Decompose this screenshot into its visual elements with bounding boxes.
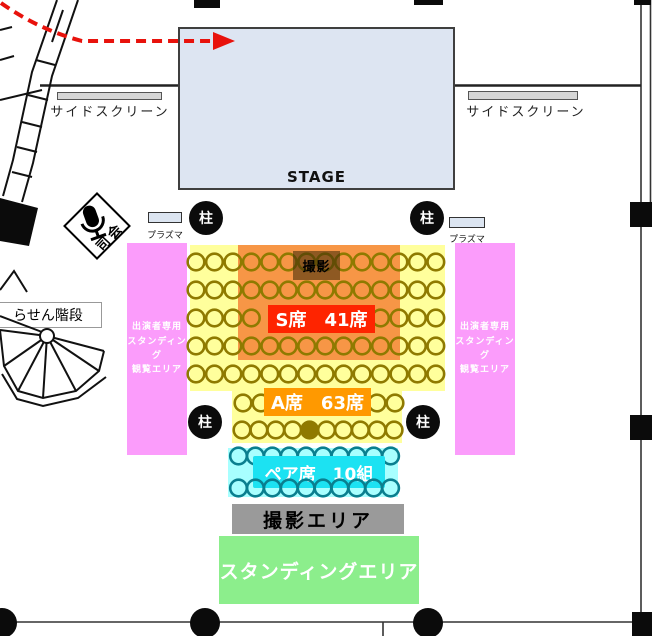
stair-base-block [0,198,38,246]
pillar-mid-left: 柱 [188,405,222,439]
side-area-line2: スタンディング [455,335,515,364]
side-area-line1: 出演者専用 [455,320,515,334]
left-side-screen-bar [57,92,162,100]
performer-standing-area-right: 出演者専用 スタンディング 観覧エリア [455,243,515,455]
left-plasma-bar [148,212,182,223]
s-seats-label: S席 41席 [268,305,375,333]
pillar-top-right: 柱 [410,201,444,235]
spiral-staircase-label: らせん階段 [0,302,102,328]
stage-label: STAGE [180,168,453,186]
mc-label: 司会 [92,219,127,255]
right-side-screen-bar [468,91,578,100]
a-seats-label: A席 63席 [264,388,371,416]
venue-seating-map: STAGE サイドスクリーン サイドスクリーン プラズマ プラズマ 柱 柱 柱 … [0,0,652,636]
pillar-label: 柱 [420,208,434,228]
photo-spot-label: 撮影 [293,251,340,280]
performer-standing-area-right-label: 出演者専用 スタンディング 観覧エリア [455,320,515,378]
right-plasma-label: プラズマ [443,232,491,245]
pillar-top-left: 柱 [189,201,223,235]
left-side-screen-label: サイドスクリーン [40,101,180,120]
mc-mic-icon: 司会 [64,193,129,258]
pillar-label: 柱 [416,412,430,432]
left-plasma-label: プラズマ [141,228,189,241]
camera-area: 撮影エリア [232,504,404,534]
pair-seats-label: ペア席 10組 [253,456,385,488]
right-side-screen-label: サイドスクリーン [456,101,596,120]
performer-standing-area-left-label: 出演者専用 スタンディング 観覧エリア [127,320,187,378]
spiral-staircase-icon [0,271,106,406]
right-plasma-bar [449,217,485,228]
standing-area: スタンディングエリア [219,536,419,604]
side-area-line3: 観覧エリア [127,363,187,377]
performer-standing-area-left: 出演者専用 スタンディング 観覧エリア [127,243,187,455]
pillar-mid-right: 柱 [406,405,440,439]
side-area-line2: スタンディング [127,335,187,364]
side-area-line1: 出演者専用 [127,320,187,334]
stage: STAGE [178,27,455,190]
pillar-label: 柱 [199,208,213,228]
side-area-line3: 観覧エリア [455,363,515,377]
pillar-label: 柱 [198,412,212,432]
